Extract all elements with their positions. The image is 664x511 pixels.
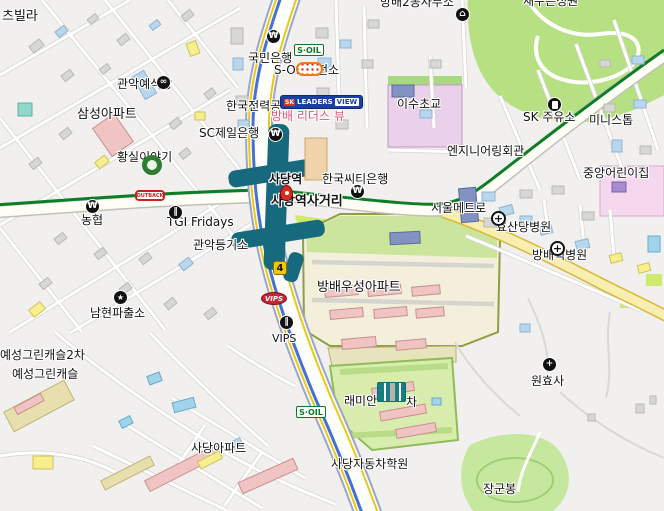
map-label-gwanak-registry: 관악등기소 <box>193 239 248 252</box>
restaurant-icon: ‖ <box>279 315 294 330</box>
map-label-jungang-daycare: 중앙어린이집 <box>583 167 649 180</box>
bank-icon: ₩ <box>268 127 283 142</box>
outback-badge: OUTBACK <box>135 190 165 201</box>
map-label-raemian-name-right: 차 <box>406 396 417 409</box>
hospital-icon: + <box>491 211 506 226</box>
government-icon: ⌂ <box>455 7 470 22</box>
map-label-janggun-peak: 장군봉 <box>483 483 516 496</box>
map-label-sadang-driving-school: 사당자동차학원 <box>331 458 408 471</box>
apartment-symbol-icon <box>377 382 406 402</box>
bank-icon: ₩ <box>350 184 365 199</box>
map-label-bangbae-woosung-apt: 방배우성아파트 <box>317 281 401 295</box>
map-canvas[interactable]: 츠빌라관악예식장삼성아파트황실이야기국민은행S-OIL충전소한국전력공사방배 리… <box>0 0 664 511</box>
map-label-ministop: 미니스톱 <box>589 114 633 127</box>
map-label-isu-elementary: 이수초교 <box>397 98 441 111</box>
map-label-bangbae2dong-office: 방배2동사무소 <box>380 0 454 9</box>
wedding-icon: ∞ <box>156 75 171 90</box>
map-label-bangbae-leaders-view: 방배 리더스 뷰 <box>271 110 345 123</box>
map-label-wonhyosa-temple: 원효사 <box>531 375 564 388</box>
map-label-sadang-station: 사당역 <box>269 173 302 186</box>
hospital-icon: + <box>550 241 565 256</box>
franchise-icon <box>296 62 323 76</box>
map-label-park-name: 새수은성원 <box>523 0 578 8</box>
bank-icon: ₩ <box>266 29 281 44</box>
map-label-nonghyup: 농협 <box>81 214 103 227</box>
restaurant-icon: ‖ <box>168 205 183 220</box>
soil-badge-2: S·OIL <box>296 406 326 418</box>
map-label-sc-first-bank: SC제일은행 <box>199 127 259 140</box>
map-label-yeseong-green-castle: 예성그린캐슬 <box>12 368 78 381</box>
vips-badge: VIPS <box>261 292 287 305</box>
subway-line4-badge: 4 <box>273 261 287 275</box>
map-label-seoul-metro: 서울메트로 <box>431 202 486 215</box>
map-label-villa-partial: 츠빌라 <box>2 10 38 24</box>
map-label-sadang-apt: 사당아파트 <box>191 442 246 455</box>
map-label-namhyeon-police: 남현파출소 <box>90 307 145 320</box>
map-label-vips-text: VIPS <box>272 333 296 345</box>
sk-leaders-view-badge: SKLEADERSVIEW <box>280 95 363 109</box>
temple-icon: + <box>542 357 557 372</box>
map-label-sk-gas-station: SK 주유소 <box>523 111 575 124</box>
map-label-yeseong-green-castle-2: 예성그린캐슬2차 <box>0 349 85 362</box>
map-label-engineering-hall: 엔지니어링회관 <box>447 145 524 158</box>
map-label-raemian-name-left: 래미안 <box>344 395 377 408</box>
bank-icon: ₩ <box>85 199 100 214</box>
traffic-icon <box>280 185 293 201</box>
map-label-samsung-apt: 삼성아파트 <box>77 108 137 122</box>
gas-icon <box>547 97 562 112</box>
hwangsil-logo-icon <box>142 155 162 175</box>
police-icon: ★ <box>113 290 128 305</box>
soil-badge-1: S·OIL <box>294 44 324 56</box>
